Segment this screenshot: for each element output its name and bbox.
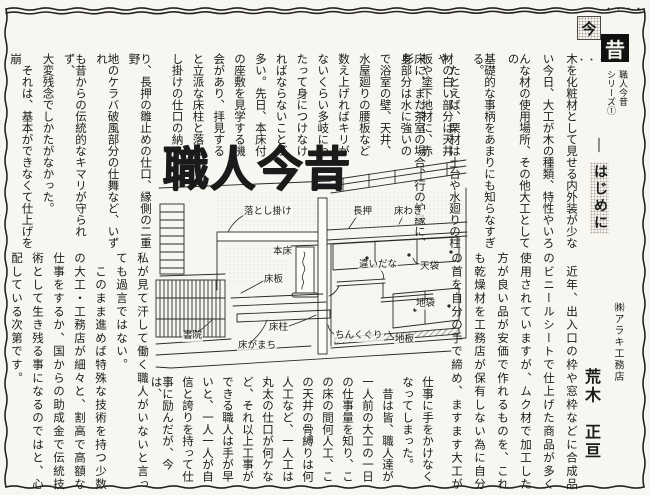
text-column: り、長押の雛止めの仕口、縁側の二重野 [127,53,150,254]
company-name: ㈱アラキ工務店 [612,302,622,383]
text-column: 木を化粧材として見せる内外装が少な [565,53,577,254]
text-column: 人工など、一人工は [281,376,293,492]
text-column: ど、それ以上工事が [241,376,253,492]
text-column: 配している次第です。 [10,252,22,493]
text-column: 地のケラバ破風部分の仕舞など、いずれ [95,53,118,254]
illustration-label: 書院 [182,332,203,342]
kon-box: 今 [577,16,601,40]
text-column: 事に励んだが、今は、 [149,376,172,492]
author-name: 荒木 正亘 [582,368,598,461]
illustration-label: 地板 [394,336,415,346]
text-column: 信と誇りを持って仕 [181,376,193,492]
text-column: い今日、大工が木の種類、特性やいろ [541,53,553,254]
heading-text: はじめに [590,162,609,234]
text-column: なってしまった。 [401,376,413,492]
text-column: 身部分は水に強いの [399,53,411,160]
series-caption: 職人今昔 シリーズ① [606,70,627,115]
illustration-label: 地袋 [415,300,436,310]
heading-dash: ― [592,138,607,155]
section-heading: ― はじめに [592,138,606,234]
text-column: 私が見て汗して働く職人がいないと言っ [136,252,148,493]
text-column: 仕事をするか、国からの助成金で伝統技 [52,252,64,493]
text-column: の天井の骨縛りは何 [301,376,313,492]
illustration-label: 床わき [393,208,424,218]
text-column: 使用されていますが、ムク材で加工した [519,252,531,493]
article-title: 職人今昔 [163,145,352,193]
text-column: 昔は皆、職人達が [381,376,393,492]
text-column: このまま進めば特殊な技術を持つ少数 [94,252,106,493]
text-column: 板や塗下地材に、赤 [420,53,432,160]
text-column: ても過言ではない。 [115,252,127,493]
illustration-label: 長押 [352,208,373,218]
dots-decoration-bottom: ・・・ [577,53,607,66]
scanned-article-page: ・・・・ 今 昔 ・・・ 職人今昔 シリーズ① ― はじめに ㈱アラキ工務店 荒… [0,0,650,495]
illustration-label: 天袋 [419,263,440,273]
dots-decoration-top: ・・・・ [604,2,644,15]
illustration-label: 違いだな [358,261,398,271]
text-column: んな材の使用場所、その他大工としての [506,53,529,254]
illustration-label: 床柱 [268,324,289,334]
text-column: も昔からの伝統的なキマリが守られず、 [62,53,85,254]
text-column: 一人前の大工の一日 [361,376,373,492]
text-column: できる職人は手が早 [221,376,233,492]
text-column: の床の間何人工、こ [321,376,333,492]
text-column: 材の白い部分は天井 [441,53,453,160]
illustration-label: 落とし掛け [243,208,293,218]
text-column: それは、基本ができなくて仕上げを崩 [9,53,32,254]
series-title: 職人今昔 [618,70,627,115]
text-column: 仕事に手をかけなく [421,376,433,492]
text-column: 方が良い品が安価で作れるものを、これ [496,252,508,493]
illustration-label: 本床 [272,248,293,258]
text-column: の大工・工務店が細々と、割高で高額な [73,252,85,493]
text-column: いと、一人一人が自 [201,376,213,492]
text-column: 大変残念でしかたがなかった。 [41,53,53,254]
article1-columns-left: り、長押の雛止めの仕口、縁側の二重野地のケラバ破風部分の仕舞など、いずれも昔から… [0,53,150,254]
text-column: 術として生き残る事になるのではと、心 [31,252,43,493]
text-column: で浴室の壁、天井、 [378,53,390,160]
series-number: シリーズ① [606,70,615,115]
text-column: 水屋廻りの腰板など [357,53,369,160]
text-column: のビニールシートで仕上げた商品が多く [542,252,554,493]
illustration-label: 床がまち [237,342,277,352]
article2-columns-middle: 仕事に手をかけなくなってしまった。 昔は皆、職人達が一人前の大工の一日の仕事量を… [149,376,432,492]
text-column: 丸太の仕口が何ケな [261,376,273,492]
text-column: 近年、出入口の枠や窓枠などに合成品 [565,252,577,493]
illustration-label: 床板 [263,276,284,286]
illustration-label: ちんくぐり [334,332,384,342]
article2-columns-left: 私が見て汗して働く職人がいないと言っても過言ではない。 このまま進めば特殊な技術… [10,252,148,493]
text-column: の仕事量を知り、こ [341,376,353,492]
